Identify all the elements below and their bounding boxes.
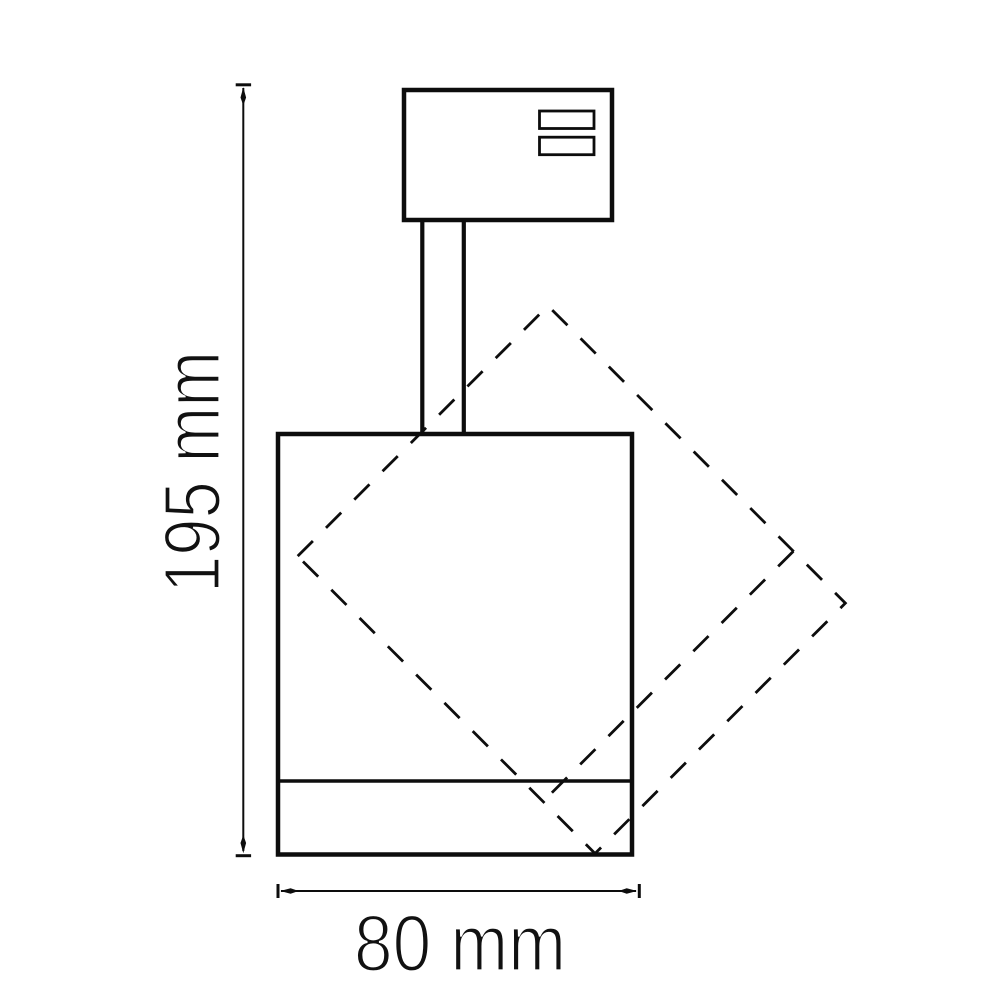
svg-text:80 mm: 80 mm bbox=[354, 899, 566, 988]
svg-text:195 mm: 195 mm bbox=[148, 351, 237, 593]
